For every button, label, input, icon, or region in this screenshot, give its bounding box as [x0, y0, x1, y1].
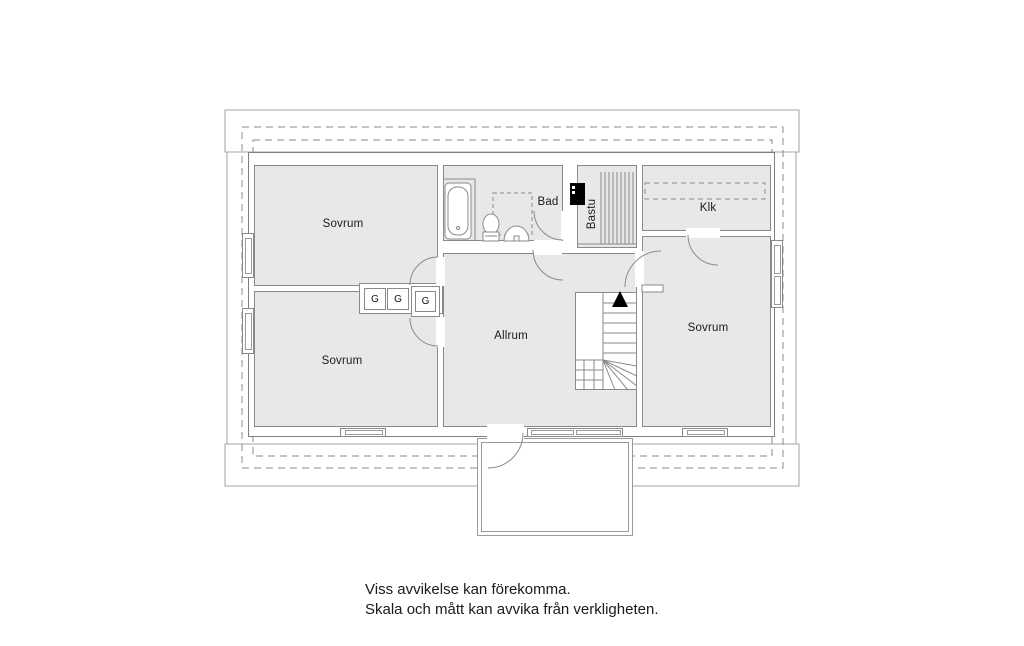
disclaimer-line-2: Skala och mått kan avvika från verklighe…: [365, 601, 658, 618]
opening-balcony: [487, 424, 524, 439]
sauna-heater-mark-2: [572, 191, 575, 194]
room-label-sovrum-bottom-left: Sovrum: [322, 355, 363, 367]
klk-rail-dashed: [645, 183, 765, 199]
room-label-bastu: Bastu: [586, 199, 598, 229]
bathtub: [445, 183, 471, 239]
door-arc-sovrum-top-left: [410, 257, 438, 285]
sauna-heater-mark-1: [572, 186, 575, 189]
door-arc-klk: [688, 235, 718, 265]
toilet: [483, 214, 499, 241]
opening-sovrum-top: [436, 257, 445, 286]
door-arcs: [410, 211, 718, 468]
sauna-heater: [570, 183, 585, 205]
detail-layer: [0, 0, 1024, 646]
door-arc-bad: [534, 211, 563, 240]
opening-klk: [686, 228, 720, 238]
room-label-sovrum-right: Sovrum: [688, 322, 729, 334]
opening-hall: [534, 240, 562, 255]
door-openings: [436, 211, 720, 439]
stairs-up-arrow: [612, 291, 628, 307]
room-label-bad: Bad: [537, 196, 558, 208]
opening-bad: [561, 211, 569, 240]
room-label-sovrum-top-left: Sovrum: [323, 218, 364, 230]
toilet-bowl: [483, 214, 499, 234]
opening-sovrum-bottom: [436, 317, 445, 347]
door-arc-sovrum-bottom-left: [410, 318, 438, 346]
sink: [504, 226, 529, 241]
wall-stub: [642, 285, 663, 292]
room-label-klk: Klk: [700, 202, 717, 214]
floor-plan-page: G G G: [0, 0, 1024, 646]
disclaimer-line-1: Viss avvikelse kan förekomma.: [365, 581, 571, 598]
sink-tap: [514, 236, 519, 241]
bathtub-inner: [448, 187, 468, 235]
room-label-allrum: Allrum: [494, 330, 528, 342]
